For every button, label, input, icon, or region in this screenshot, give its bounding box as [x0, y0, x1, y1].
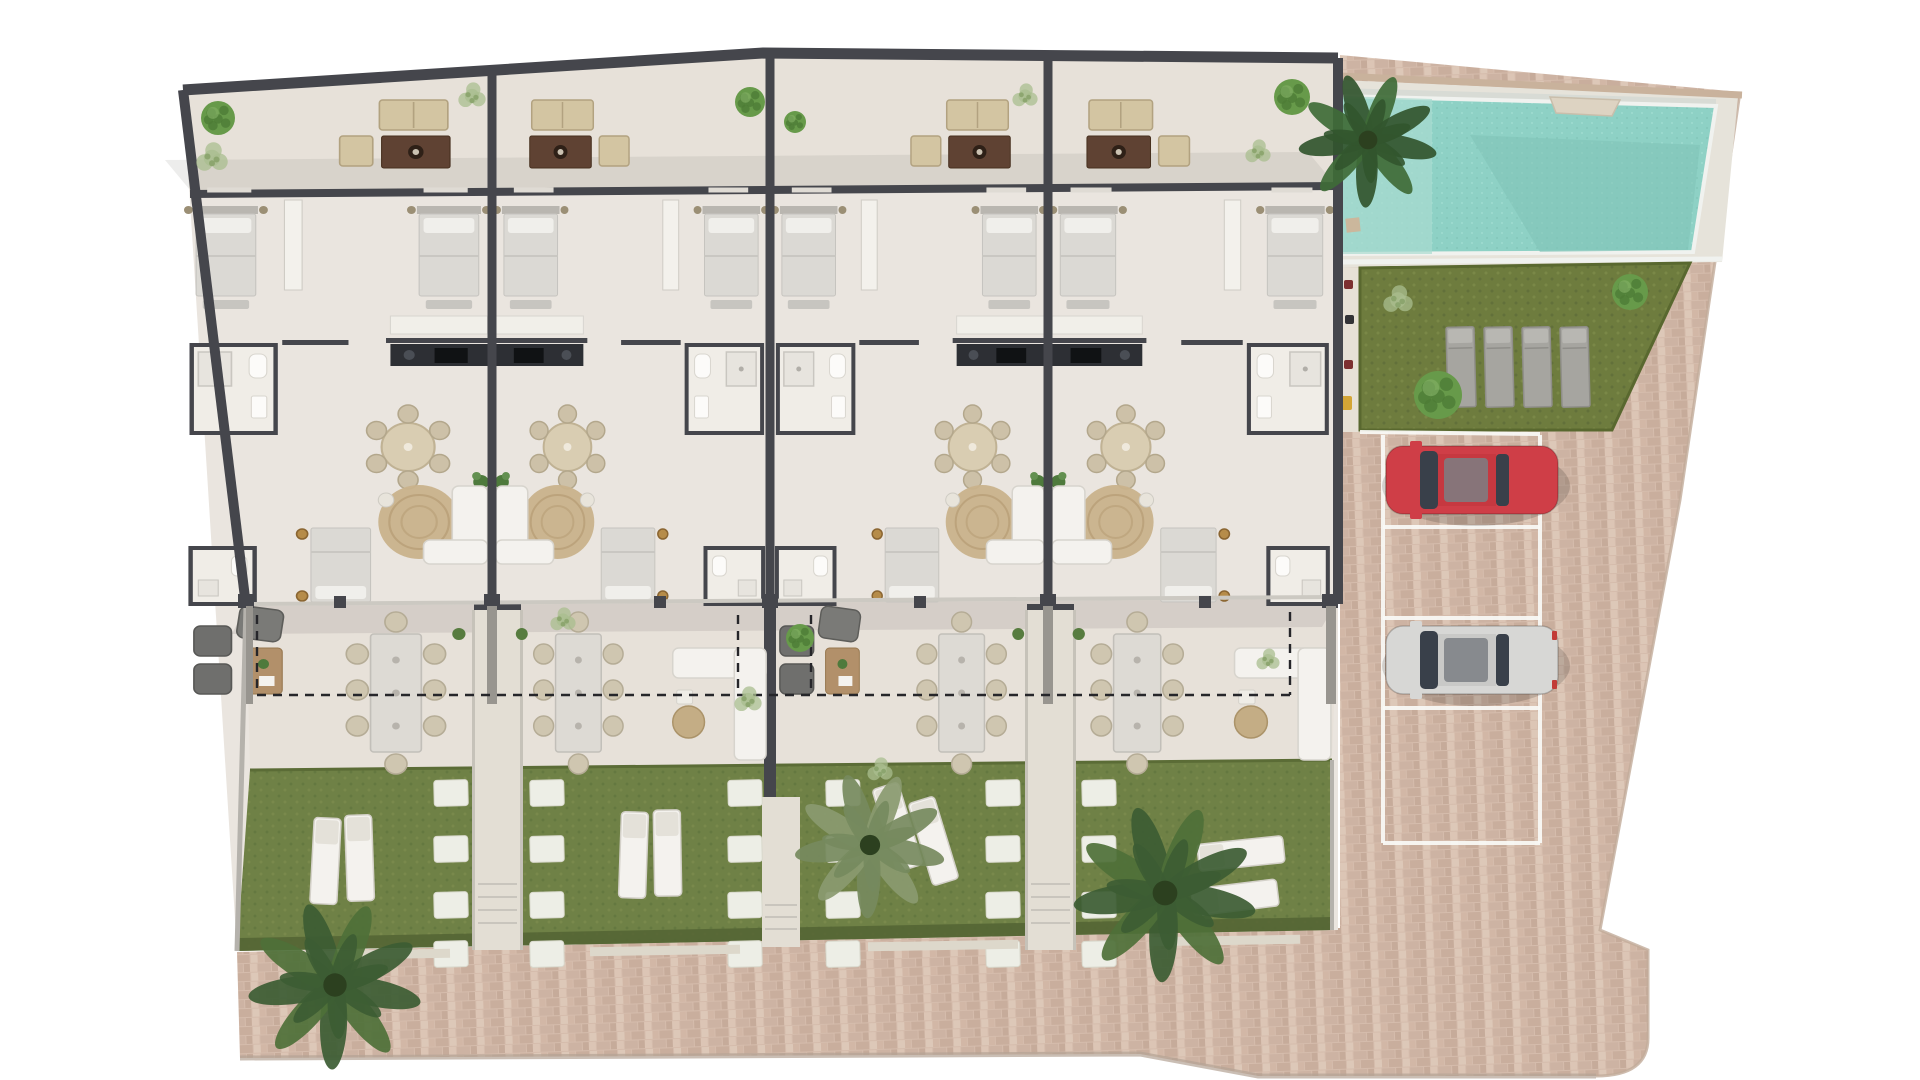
hob	[996, 348, 1026, 363]
tree-highlight	[207, 107, 219, 119]
interior-wall	[953, 338, 1048, 343]
terrace-plant	[1012, 628, 1024, 640]
table-bowl-inner	[1116, 149, 1122, 155]
outdoor-chair	[424, 644, 446, 664]
headboard	[703, 206, 761, 214]
hob	[435, 348, 468, 363]
interior-wall	[1181, 340, 1243, 345]
round-tree	[784, 111, 806, 133]
sunbed-headrest	[1448, 329, 1472, 344]
pillows	[786, 218, 832, 233]
wooden-coffee-table	[826, 648, 860, 694]
sink	[404, 350, 415, 360]
bed	[1256, 206, 1334, 309]
bed	[694, 206, 769, 309]
stepping-stone	[434, 836, 469, 863]
bush-tuft	[1023, 98, 1028, 103]
bush-tuft	[469, 98, 474, 103]
bed	[493, 206, 568, 309]
bed-bench	[1066, 300, 1109, 309]
terrace-plant	[452, 628, 465, 640]
headboard	[1265, 206, 1324, 214]
terrace-divider	[246, 606, 253, 704]
tree-highlight	[791, 629, 801, 639]
round-tree	[1274, 79, 1310, 115]
dining-chair	[1146, 455, 1164, 473]
centerpiece	[404, 443, 413, 451]
side-table	[946, 493, 960, 507]
sofa-section	[986, 540, 1044, 564]
lounge-armchair	[194, 626, 232, 656]
outdoor-armchair	[1159, 136, 1190, 166]
car-silver	[1382, 621, 1570, 706]
outdoor-chair	[385, 612, 407, 632]
dining-chair	[530, 455, 548, 473]
nightstand	[1326, 206, 1334, 214]
headboard	[1058, 206, 1117, 214]
shower-drain	[796, 367, 801, 372]
tree-highlight	[740, 92, 751, 103]
bush-tuft	[466, 92, 471, 97]
facade-pier	[334, 596, 346, 608]
outdoor-corner-sofa	[1298, 648, 1331, 760]
bed-bench	[426, 300, 472, 309]
stepping-stone	[434, 780, 469, 807]
lounge-armchair	[780, 664, 814, 694]
sofa-section	[424, 540, 488, 564]
entry-path	[762, 797, 800, 947]
outdoor-chair	[424, 716, 446, 736]
planter-pot	[1344, 360, 1353, 369]
stepping-stone	[1082, 780, 1117, 807]
outdoor-armchair	[599, 136, 629, 166]
shower	[738, 580, 756, 596]
floor-plan-canvas	[0, 0, 1920, 1080]
bed-pillows	[889, 586, 935, 599]
facade-pier	[1199, 596, 1211, 608]
sunbed-headrest	[1524, 329, 1548, 344]
nightstand	[838, 206, 846, 214]
bed-bench	[510, 300, 552, 309]
stepping-stone	[434, 892, 469, 919]
outdoor-chair	[952, 612, 972, 632]
nightstand	[184, 206, 193, 214]
facade-pier	[762, 594, 778, 608]
bed-bench	[788, 300, 830, 309]
terrace-plant	[516, 628, 528, 640]
facade-pier	[1040, 594, 1056, 608]
tree-texture	[751, 91, 759, 99]
toilet	[712, 556, 726, 576]
outdoor-chair	[534, 680, 554, 700]
outdoor-chair	[603, 716, 623, 736]
sofa-section	[496, 540, 554, 564]
pool-mat	[1345, 217, 1360, 232]
stepping-stone	[986, 836, 1021, 863]
wardrobe	[663, 200, 679, 290]
lawn-tree	[1612, 274, 1648, 310]
lawn-sunbed	[1522, 327, 1552, 408]
dining-chair	[430, 422, 450, 440]
bed-pillows	[605, 586, 651, 599]
pendant-light	[1219, 529, 1229, 539]
car-mirror	[1410, 512, 1422, 519]
table-plant	[837, 659, 847, 669]
side-table	[580, 493, 594, 507]
tree-texture	[1631, 279, 1641, 289]
pillows	[986, 218, 1032, 233]
dining-chair	[587, 455, 605, 473]
outdoor-chair	[534, 716, 554, 736]
kitchen-island	[390, 316, 487, 334]
bush-tuft	[742, 696, 747, 701]
facade-pier	[1322, 594, 1338, 608]
wardrobe	[861, 200, 877, 290]
outdoor-chair	[568, 754, 588, 774]
sunbed-headrest	[1486, 329, 1510, 344]
car-rear-window	[1496, 454, 1509, 506]
lounger-backrest	[347, 817, 371, 842]
bush-tuft	[1266, 662, 1270, 666]
outdoor-chair	[424, 680, 446, 700]
bush-tuft	[1019, 92, 1024, 97]
sink	[562, 350, 572, 360]
bed-bench	[710, 300, 752, 309]
nightstand	[694, 206, 702, 214]
lounger-backrest	[623, 814, 647, 839]
dining-chair	[992, 455, 1010, 473]
outdoor-chair	[346, 680, 368, 700]
washbasin	[1257, 396, 1271, 418]
stepping-stone	[728, 780, 763, 807]
outdoor-chair	[917, 644, 937, 664]
car-red	[1382, 441, 1570, 526]
bush-tuft	[874, 766, 879, 771]
pool-deck-lower-rim	[1340, 259, 1722, 262]
dining-chair	[398, 405, 418, 423]
dining-chair	[1087, 455, 1105, 473]
interior-wall	[621, 340, 681, 345]
bed	[407, 206, 491, 309]
sunbed-fold	[1487, 348, 1511, 349]
table-bowl-inner	[558, 149, 564, 155]
hob	[1071, 348, 1102, 363]
bush-tuft	[561, 622, 566, 627]
pool-steps	[1550, 97, 1620, 116]
bathroom	[1249, 345, 1327, 433]
pendant-light	[297, 529, 308, 539]
washbasin	[251, 396, 266, 418]
outdoor-chair	[1127, 612, 1148, 632]
tree-highlight	[1280, 85, 1293, 98]
dining-chair	[1117, 405, 1135, 423]
sofa-section	[1052, 540, 1111, 564]
pendant-light	[872, 529, 882, 539]
toilet	[814, 556, 828, 576]
planter-pot	[1345, 315, 1354, 324]
place-setting	[392, 657, 400, 664]
dining-chair	[1087, 422, 1105, 440]
stepping-stone	[530, 892, 565, 919]
parking-line	[1360, 432, 1540, 434]
stepping-stone	[728, 836, 763, 863]
wardrobe	[1224, 200, 1240, 290]
stepping-stone	[826, 941, 861, 968]
tree-texture	[801, 628, 809, 636]
sunbed-headrest	[1562, 329, 1586, 344]
nightstand	[972, 206, 980, 214]
pillows	[508, 218, 554, 233]
dining-chair	[559, 405, 577, 423]
headboard	[980, 206, 1038, 214]
indoor-plant-leaf	[1058, 472, 1066, 480]
outdoor-chair	[986, 716, 1006, 736]
outdoor-chair	[986, 644, 1006, 664]
path-fence	[472, 610, 475, 950]
kitchen-island	[496, 316, 583, 334]
lounger-backrest	[315, 819, 339, 844]
place-setting	[575, 657, 582, 664]
facade-pier	[914, 596, 926, 608]
wardrobe	[284, 200, 302, 290]
shower-drain	[1303, 367, 1308, 372]
path-fence	[520, 610, 523, 950]
taillight	[1552, 680, 1557, 689]
lawn-sunbed	[1560, 327, 1590, 408]
dining-chair	[367, 455, 387, 473]
bed	[771, 206, 846, 309]
outdoor-chair	[1091, 716, 1112, 736]
tree-texture	[796, 114, 802, 120]
garden-lounger	[619, 812, 649, 899]
bed-bench	[988, 300, 1030, 309]
place-setting	[958, 657, 965, 664]
small-table	[677, 690, 693, 704]
lounger-backrest	[655, 812, 678, 836]
lounge-armchair	[818, 605, 862, 642]
table-bowl-inner	[413, 149, 420, 155]
outdoor-armchair	[340, 136, 373, 166]
dining-chair	[367, 422, 387, 440]
dining-chair	[992, 422, 1010, 440]
garden-lounger	[653, 810, 681, 896]
table-bowl-inner	[977, 149, 983, 155]
outdoor-chair	[917, 680, 937, 700]
place-setting	[958, 723, 965, 730]
car-mirror	[1410, 692, 1422, 699]
interior-wall	[386, 338, 492, 343]
outdoor-chair	[346, 716, 368, 736]
kitchen-island	[1052, 316, 1142, 334]
indoor-plant-leaf	[472, 472, 481, 480]
outdoor-chair	[986, 680, 1006, 700]
headboard	[780, 206, 838, 214]
indoor-plant-leaf	[502, 472, 510, 480]
terrace-tree	[786, 624, 814, 652]
dining-chair	[587, 422, 605, 440]
toilet	[1276, 556, 1290, 576]
side-table	[1139, 493, 1153, 507]
outdoor-chair	[1127, 754, 1148, 774]
palm-crown	[1153, 881, 1178, 906]
bush-tuft	[557, 616, 562, 621]
pendant-light	[297, 591, 308, 601]
table-book	[259, 676, 274, 686]
terrace-divider	[487, 606, 497, 704]
garden-lounger	[345, 815, 375, 902]
nightstand	[561, 206, 569, 214]
outdoor-chair	[385, 754, 407, 774]
bush-tuft	[1252, 148, 1257, 153]
path-fence	[1073, 610, 1076, 950]
second-bathroom	[705, 548, 763, 604]
corridor-1	[472, 604, 523, 950]
stepping-stone	[530, 836, 565, 863]
outdoor-chair	[346, 644, 368, 664]
sink	[1120, 350, 1130, 360]
pillows	[424, 218, 475, 233]
round-tree	[201, 101, 235, 135]
centerpiece	[969, 443, 977, 451]
outdoor-chair	[952, 754, 972, 774]
outdoor-chair	[1091, 644, 1112, 664]
nightstand	[407, 206, 416, 214]
table-book	[838, 676, 852, 686]
dining-chair	[935, 455, 953, 473]
toilet	[249, 354, 267, 378]
stepping-stone	[728, 941, 763, 968]
bush-tuft	[745, 702, 750, 707]
facade-pier	[484, 594, 500, 608]
tree-texture	[1440, 377, 1453, 390]
shower	[198, 580, 218, 596]
nightstand	[259, 206, 268, 214]
outdoor-chair	[1163, 680, 1184, 700]
bathroom	[687, 345, 762, 433]
entry-path	[474, 610, 521, 950]
lounge-armchair	[194, 664, 232, 694]
shower	[1302, 580, 1320, 596]
jute-pouf	[673, 706, 705, 738]
dining-chair	[935, 422, 953, 440]
headboard	[194, 206, 258, 214]
lawn-sunbed	[1484, 327, 1514, 408]
bed	[1049, 206, 1127, 309]
sunbed-fold	[1525, 348, 1549, 349]
outdoor-chair	[603, 644, 623, 664]
palm-crown	[1359, 131, 1378, 150]
kitchen-island	[957, 316, 1044, 334]
bathroom	[778, 345, 853, 433]
pillows	[201, 218, 252, 233]
jute-pouf	[1235, 706, 1268, 738]
interior-wall	[1048, 338, 1146, 343]
toilet	[1257, 354, 1273, 378]
tree-highlight	[788, 115, 796, 123]
stepping-stone	[986, 892, 1021, 919]
pillows	[1271, 218, 1318, 233]
bush-tuft	[1395, 302, 1401, 308]
terrace-plant	[1073, 628, 1085, 640]
car-sunroof	[1444, 638, 1488, 682]
second-bathroom	[777, 548, 835, 604]
sunbed-fold	[1449, 348, 1473, 349]
path-fence	[1025, 610, 1028, 950]
dining-chair	[430, 455, 450, 473]
taillight	[1552, 631, 1557, 640]
outdoor-chair	[534, 644, 554, 664]
facade-pier	[238, 594, 254, 608]
pendant-light	[658, 529, 668, 539]
nightstand	[1119, 206, 1127, 214]
bush-tuft	[1391, 296, 1397, 302]
washbasin	[832, 396, 846, 418]
stepping-stone	[986, 780, 1021, 807]
outdoor-chair	[1163, 716, 1184, 736]
planter-pot	[1344, 280, 1353, 289]
outdoor-chair	[1163, 644, 1184, 664]
table-plant	[258, 659, 269, 669]
car-mirror	[1410, 441, 1422, 448]
place-setting	[392, 723, 400, 730]
sink	[969, 350, 979, 360]
side-table	[378, 493, 393, 507]
car-rear-window	[1496, 634, 1509, 686]
dining-chair	[1146, 422, 1164, 440]
tree-texture	[219, 106, 229, 116]
headboard	[417, 206, 481, 214]
terrace-divider	[1326, 606, 1336, 704]
lawn-tree	[1414, 371, 1462, 419]
stepping-stone	[530, 780, 565, 807]
outdoor-chair	[917, 716, 937, 736]
bush-tuft	[205, 154, 211, 160]
outdoor-armchair	[911, 136, 941, 166]
pillows	[1064, 218, 1111, 233]
interior-wall	[859, 340, 919, 345]
washbasin	[695, 396, 709, 418]
bush-tuft	[878, 772, 883, 777]
bed	[972, 206, 1047, 309]
stepping-stone	[728, 892, 763, 919]
bush-tuft	[1256, 154, 1261, 159]
shower-drain	[739, 367, 744, 372]
toilet	[830, 354, 846, 378]
car-mirror	[1410, 621, 1422, 628]
pillows	[708, 218, 754, 233]
centerpiece	[563, 443, 571, 451]
interior-wall	[492, 338, 587, 343]
garden-lounger	[310, 817, 341, 904]
car-windshield	[1420, 631, 1438, 689]
bush-tuft	[209, 160, 215, 166]
dining-chair	[530, 422, 548, 440]
bathroom	[192, 345, 276, 433]
indoor-plant-leaf	[1030, 472, 1038, 480]
sunbed-fold	[1563, 348, 1587, 349]
headboard	[502, 206, 560, 214]
outdoor-chair	[1091, 680, 1112, 700]
place-setting	[575, 723, 582, 730]
interior-wall	[282, 340, 348, 345]
place-setting	[1134, 723, 1141, 730]
car-sunroof	[1444, 458, 1488, 502]
palm-crown	[323, 973, 346, 996]
bed-bench	[1274, 300, 1317, 309]
tree-texture	[1293, 84, 1303, 94]
round-tree	[735, 87, 765, 117]
stepping-stone	[530, 941, 565, 968]
